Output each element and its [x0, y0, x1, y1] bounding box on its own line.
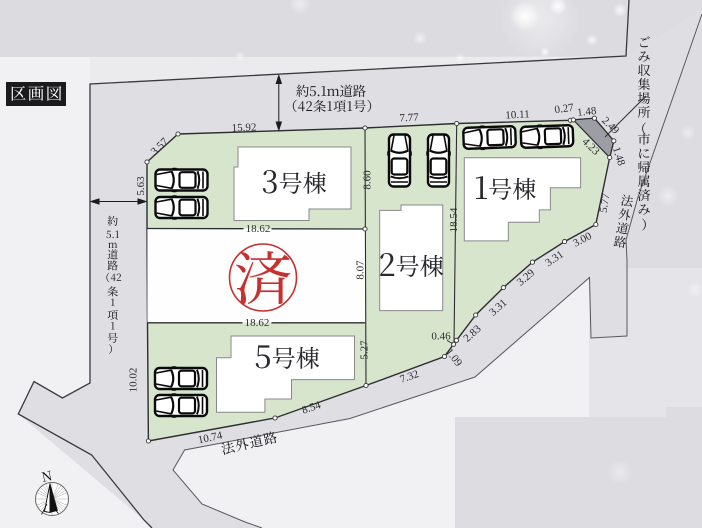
svg-text:7.77: 7.77 [399, 111, 419, 124]
svg-text:18.62: 18.62 [246, 223, 271, 235]
svg-text:10.02: 10.02 [128, 368, 140, 393]
svg-text:5.27: 5.27 [359, 340, 371, 360]
svg-text:10.11: 10.11 [505, 108, 530, 121]
svg-text:18.62: 18.62 [245, 317, 270, 329]
svg-text:8.60: 8.60 [362, 170, 374, 190]
svg-text:18.54: 18.54 [448, 207, 460, 232]
svg-text:5.63: 5.63 [135, 176, 147, 196]
svg-text:1.48: 1.48 [577, 105, 598, 119]
svg-text:15.92: 15.92 [231, 122, 256, 135]
svg-text:8.07: 8.07 [355, 260, 367, 280]
